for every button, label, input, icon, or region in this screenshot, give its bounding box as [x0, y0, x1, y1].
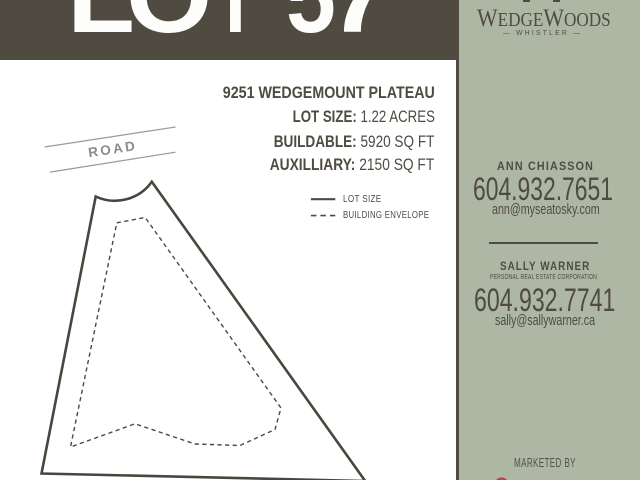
svg-text:ROAD: ROAD: [87, 138, 138, 160]
